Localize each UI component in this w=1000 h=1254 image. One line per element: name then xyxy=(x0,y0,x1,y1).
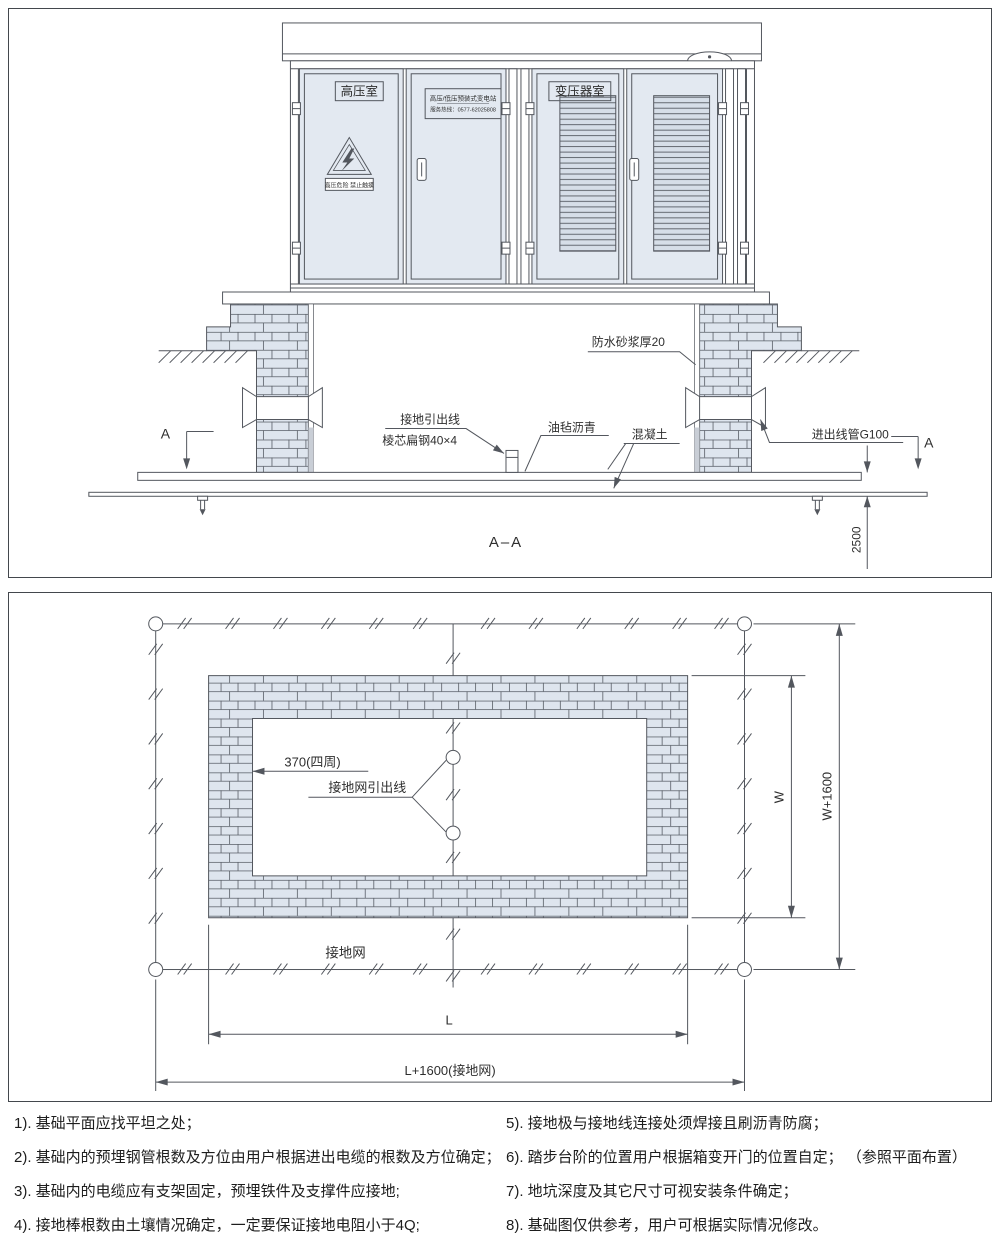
section-mark-right: A xyxy=(924,434,934,450)
cabinet xyxy=(223,23,770,304)
notes-column-right: 5). 接地极与接地线连接处须焊接且刷沥青防腐； 6). 踏步台阶的位置用户根据… xyxy=(506,1114,992,1250)
nameplate-line1: 高压/低压预装式变电站 xyxy=(430,94,497,103)
elevation-drawing: 高压室 变压器室 高压/低压预装式变电站 服务热线：0577-62025808 … xyxy=(9,9,991,577)
louver-vent xyxy=(560,96,616,251)
width-dimension: W xyxy=(771,790,786,803)
corner-rod xyxy=(149,963,163,977)
roof xyxy=(282,23,761,61)
mortar-callout: 防水砂浆厚20 xyxy=(592,334,665,349)
ground-hatch xyxy=(159,351,248,363)
notes-column-left: 1). 基础平面应找平坦之处； 2). 基础内的预埋钢管根数及方位由用户根据进出… xyxy=(14,1114,506,1250)
width-total-dimension: W+1600 xyxy=(819,772,834,821)
ground-rod xyxy=(198,496,208,515)
ground-hatch xyxy=(763,351,852,363)
note-item-1: 1). 基础平面应找平坦之处； xyxy=(14,1114,506,1134)
notes-section: 1). 基础平面应找平坦之处； 2). 基础内的预埋钢管根数及方位由用户根据进出… xyxy=(14,1114,992,1250)
right-brick-pier xyxy=(700,304,802,472)
flat-steel-callout: 棱芯扁钢40×4 xyxy=(382,433,457,447)
platform-slab xyxy=(223,292,770,304)
note-item-3: 3). 基础内的电缆应有支架固定，预埋铁件及支撑件应接地; xyxy=(14,1182,506,1202)
wall-thickness-callout: 370(四周) xyxy=(284,754,340,769)
foundation-drawing-page: 高压室 变压器室 高压/低压预装式变电站 服务热线：0577-62025808 … xyxy=(0,0,1000,1254)
warning-label: 高压危险 禁止触摸 xyxy=(325,181,374,189)
ground-lead-callout: 接地引出线 xyxy=(400,412,460,427)
louver-vent xyxy=(654,96,710,251)
elevation-panel: 高压室 变压器室 高压/低压预装式变电站 服务热线：0577-62025808 … xyxy=(8,8,992,578)
foundation xyxy=(89,304,927,515)
depth-dimension: 2500 xyxy=(849,526,863,553)
base-slab xyxy=(89,492,927,496)
ground-rod xyxy=(812,496,822,515)
section-mark-left: A xyxy=(161,425,171,441)
note-item-8: 8). 基础图仅供参考，用户可根据实际情况修改。 xyxy=(506,1216,992,1236)
length-dimension: L xyxy=(445,1012,452,1027)
earthing-riser xyxy=(506,450,518,472)
left-brick-pier xyxy=(207,304,309,472)
asphalt-felt-callout: 油毡沥青 xyxy=(548,421,596,435)
conduit-callout: 进出线管G100 xyxy=(812,426,889,441)
hv-room-label: 高压室 xyxy=(341,84,378,99)
grid-lead-callout: 接地网引出线 xyxy=(328,780,406,795)
note-item-7: 7). 地坑深度及其它尺寸可视安装条件确定； xyxy=(506,1182,992,1202)
note-item-5: 5). 接地极与接地线连接处须焊接且刷沥青防腐； xyxy=(506,1114,992,1134)
corner-rod xyxy=(738,963,752,977)
note-item-2: 2). 基础内的预埋钢管根数及方位由用户根据进出电缆的根数及方位确定； xyxy=(14,1148,506,1168)
transformer-door-right xyxy=(627,69,723,284)
nameplate-line2: 服务热线：0577-62025808 xyxy=(430,106,496,114)
corner-rod xyxy=(738,617,752,631)
note-item-4: 4). 接地棒根数由土壤情况确定，一定要保证接地电阻小于4Q; xyxy=(14,1216,506,1236)
corner-rod xyxy=(149,617,163,631)
concrete-slab xyxy=(138,472,862,480)
grid-label: 接地网 xyxy=(325,945,365,961)
lead-out-point xyxy=(446,826,460,840)
length-total-dimension: L+1600(接地网) xyxy=(405,1063,496,1078)
note-item-6: 6). 踏步台阶的位置用户根据箱变开门的位置自定； （参照平面布置） xyxy=(506,1148,992,1168)
plan-drawing: 370(四周) 接地网引出线 接地网 L L+1600(接地网) W W+160… xyxy=(9,593,991,1101)
transformer-room-label: 变压器室 xyxy=(555,84,605,99)
section-title: A–A xyxy=(489,534,523,551)
plan-panel: 370(四周) 接地网引出线 接地网 L L+1600(接地网) W W+160… xyxy=(8,592,992,1102)
lead-out-point xyxy=(446,750,460,764)
grounding-grid xyxy=(149,617,856,1091)
concrete-callout: 混凝土 xyxy=(632,426,668,441)
